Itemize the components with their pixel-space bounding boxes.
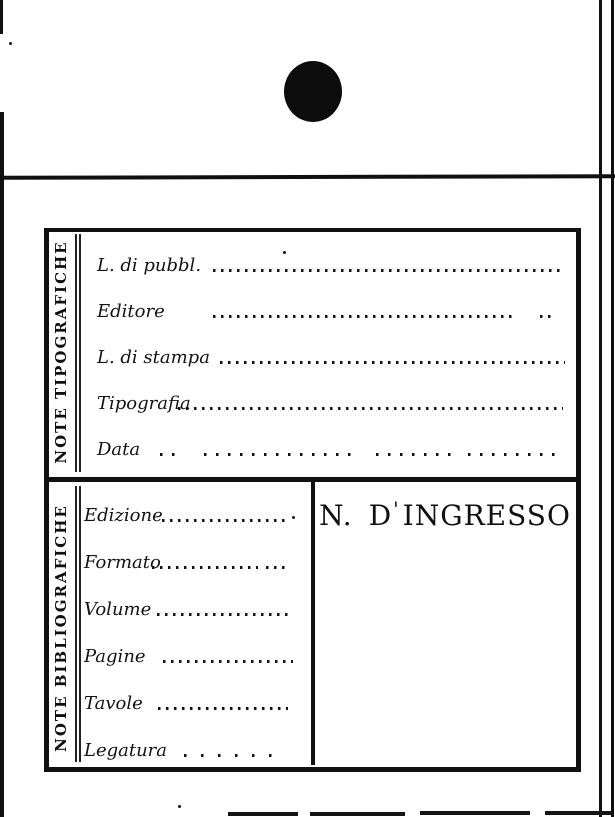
label-column-rule xyxy=(75,234,77,472)
scan-speck xyxy=(292,516,295,519)
accession-word: INGRESSO xyxy=(403,499,571,532)
scan-artifact xyxy=(310,812,405,816)
label-column-rule xyxy=(79,486,81,762)
field-label-formato: Formato xyxy=(84,553,161,573)
field-label-data: Data xyxy=(97,440,140,460)
field-label-edizione: Edizione xyxy=(84,506,163,526)
dotted-line xyxy=(213,269,565,272)
dotted-line xyxy=(540,315,556,318)
field-label-luogo-pubblicazione: L. di pubbl. xyxy=(97,256,201,276)
dotted-line xyxy=(162,519,290,522)
dotted-line xyxy=(184,754,280,757)
scan-speck xyxy=(283,251,286,254)
scan-edge-left xyxy=(0,112,4,817)
dotted-line xyxy=(158,707,288,710)
dotted-line xyxy=(204,453,360,456)
label-column-rule xyxy=(79,234,81,472)
accession-apostrophe: ' xyxy=(393,497,400,521)
section-title-bibliographic: NOTE BIBLIOGRAFICHE xyxy=(51,478,71,778)
accession-panel-title: N.D'INGRESSO xyxy=(316,500,574,534)
dotted-line xyxy=(163,660,293,663)
dotted-line xyxy=(160,453,176,456)
field-label-editore: Editore xyxy=(97,302,165,322)
field-label-tavole: Tavole xyxy=(84,694,143,714)
dotted-line xyxy=(213,315,515,318)
scan-artifact xyxy=(420,811,530,815)
scan-edge-top-left xyxy=(0,0,3,34)
scan-speck xyxy=(178,805,181,808)
dotted-line xyxy=(376,453,454,456)
scan-edge-right-outer xyxy=(611,0,614,817)
card-top-rule xyxy=(0,174,615,180)
scan-speck xyxy=(9,42,12,45)
dotted-line xyxy=(266,566,288,569)
dotted-line xyxy=(157,613,292,616)
label-column-rule xyxy=(75,486,77,762)
field-label-tipografia: Tipografia xyxy=(97,394,191,414)
dotted-line xyxy=(152,566,258,569)
scan-artifact xyxy=(228,812,298,816)
dotted-line xyxy=(220,361,565,364)
field-label-luogo-stampa: L. di stampa xyxy=(97,348,210,368)
accession-column-divider xyxy=(311,482,315,765)
punch-hole-icon xyxy=(284,61,342,122)
accession-d: D xyxy=(369,499,392,532)
field-label-pagine: Pagine xyxy=(84,647,146,667)
dotted-line xyxy=(178,407,563,410)
scan-edge-right-inner xyxy=(599,0,602,817)
section-title-typographic: NOTE TIPOGRAFICHE xyxy=(51,202,71,502)
dotted-line xyxy=(468,453,556,456)
accession-n: N. xyxy=(319,499,353,532)
field-label-volume: Volume xyxy=(84,600,151,620)
field-label-legatura: Legatura xyxy=(84,741,167,761)
scan-artifact xyxy=(545,811,613,815)
library-card-scan: NOTE TIPOGRAFICHE NOTE BIBLIOGRAFICHE L.… xyxy=(0,0,615,817)
